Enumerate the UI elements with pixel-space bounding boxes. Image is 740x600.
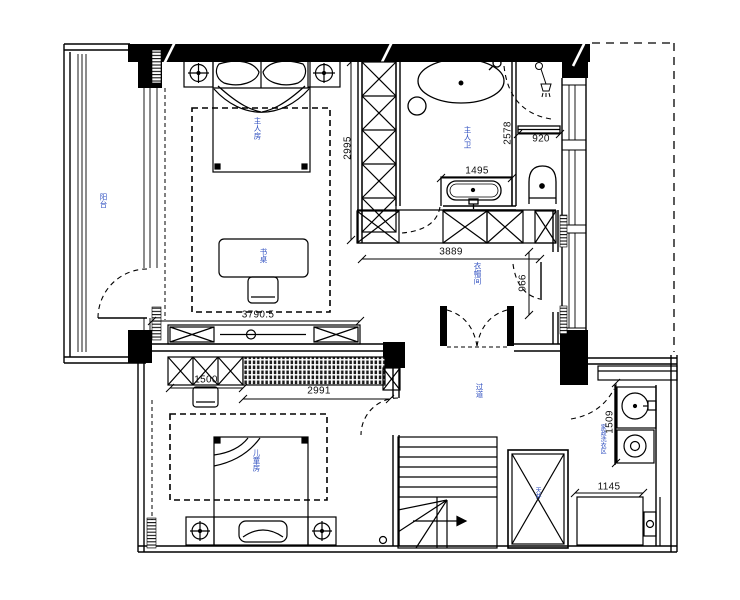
kids-bed bbox=[214, 437, 308, 545]
dim-1509: 1509 bbox=[605, 410, 616, 433]
bathtub bbox=[418, 59, 504, 103]
kids-nightstand-left bbox=[186, 517, 214, 545]
vanity-sink bbox=[441, 177, 512, 209]
door-stop bbox=[380, 537, 387, 544]
long-cabinet bbox=[168, 325, 360, 344]
bath-closet-door-arc bbox=[402, 207, 440, 233]
washing-machine bbox=[617, 430, 654, 463]
kids-nightstand-right bbox=[308, 517, 336, 545]
nightstand-right bbox=[308, 60, 340, 87]
laundry-basin bbox=[617, 387, 656, 428]
furniture-label-desk: 书桌 bbox=[259, 248, 267, 263]
master-bed bbox=[213, 60, 310, 172]
closet-cabinets bbox=[357, 210, 556, 243]
laundry-counter bbox=[577, 497, 660, 546]
bath-door-arc bbox=[504, 66, 551, 119]
dim-3790-5: 3790.5 bbox=[242, 310, 274, 321]
room-label-hallway: 过道 bbox=[475, 383, 483, 398]
laundry-top-cabinet bbox=[598, 366, 677, 380]
wardrobe-column bbox=[362, 62, 396, 232]
room-label-closet: 衣帽间 bbox=[473, 262, 481, 285]
kids-room-furniture bbox=[152, 400, 387, 545]
room-label-master-bedroom: 主人房 bbox=[253, 117, 261, 140]
room-label-master-bath: 主人卫 bbox=[463, 126, 471, 149]
desk-chair bbox=[248, 277, 278, 303]
kids-carpet-dashed bbox=[170, 414, 327, 500]
kids-door-arc bbox=[361, 398, 398, 435]
floor-plan-drawing bbox=[0, 0, 740, 600]
shower-head-icon bbox=[536, 63, 552, 98]
double-door-arcs bbox=[447, 310, 507, 346]
dim-2995: 2995 bbox=[343, 136, 354, 159]
floor-plan: 阳台 主人房 主人卫 衣帽间 过道 儿童房 家政洗衣区 天井 书桌 3790.5… bbox=[0, 0, 740, 600]
room-label-kids-room: 儿童房 bbox=[252, 449, 260, 472]
terrace-dashed-outline bbox=[592, 43, 674, 352]
kids-stool bbox=[193, 387, 218, 407]
dim-966: 966 bbox=[518, 274, 529, 292]
dim-1145: 1145 bbox=[598, 482, 621, 493]
bath-stool bbox=[408, 97, 426, 115]
stairs-direction-arrow bbox=[413, 517, 466, 526]
dimension-lines bbox=[148, 58, 647, 497]
toilet bbox=[529, 166, 556, 204]
walls-lines bbox=[64, 44, 677, 552]
shaft bbox=[508, 450, 568, 548]
dim-1495: 1495 bbox=[465, 166, 488, 177]
nightstand-left bbox=[184, 60, 213, 87]
room-label-shaft: 天井 bbox=[534, 487, 540, 499]
stairs bbox=[398, 437, 497, 548]
dim-2578: 2578 bbox=[503, 121, 514, 144]
laundry-area bbox=[577, 366, 677, 546]
dim-920: 920 bbox=[532, 134, 550, 145]
balcony-door-arc bbox=[98, 269, 147, 318]
dim-3889: 3889 bbox=[439, 247, 462, 258]
toilet-shelf bbox=[518, 126, 560, 133]
dim-2991: 2991 bbox=[307, 386, 330, 397]
dim-1500: 1500 bbox=[194, 375, 217, 386]
room-label-balcony: 阳台 bbox=[99, 193, 107, 208]
mid-cabinets bbox=[168, 325, 400, 407]
master-bedroom-furniture bbox=[165, 60, 340, 320]
